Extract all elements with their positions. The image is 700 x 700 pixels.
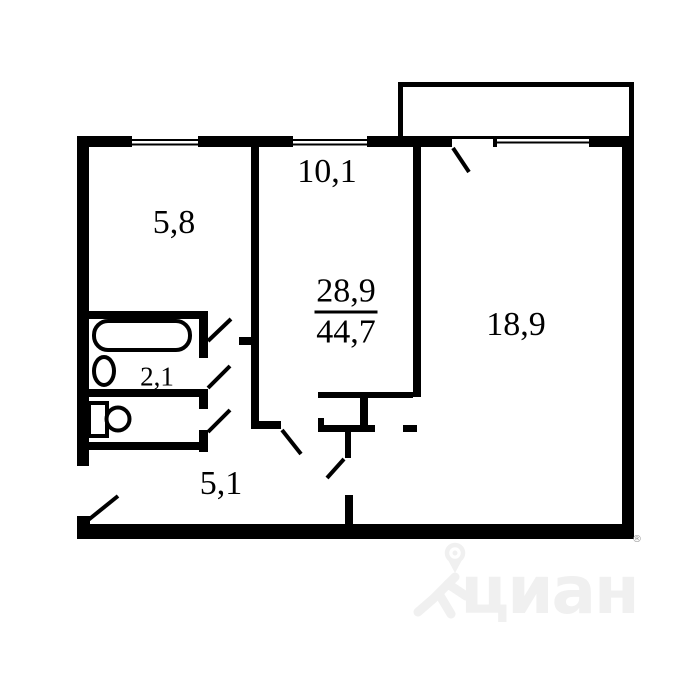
room-large-window-icon — [497, 139, 589, 147]
room-label-bathroom: 2,1 — [140, 364, 174, 391]
room-label-room-large: 18,9 — [486, 308, 546, 342]
entrance-door-swing — [87, 496, 118, 521]
closet-wall-bottom-nub — [318, 418, 324, 432]
toilet-bowl-icon — [107, 408, 130, 431]
toilet-wall-bottom-stub — [199, 430, 208, 452]
bathroom-door-swing — [208, 366, 230, 388]
kitchen-window-icon — [132, 136, 198, 147]
cian-logo-icon — [418, 545, 466, 614]
toilet-wall-bottom — [89, 442, 199, 450]
bathroom-wall-right — [199, 311, 208, 358]
room-label-kitchen: 5,8 — [153, 206, 196, 240]
watermark: циан — [418, 545, 638, 629]
watermark-brand-text: циан — [460, 552, 637, 629]
balcony-wall-left — [398, 82, 403, 138]
registered-mark: ® — [632, 534, 642, 545]
wall-divider-left-tick — [239, 337, 251, 345]
hall-door-wall — [345, 432, 351, 458]
living-area-value: 28,9 — [316, 275, 376, 309]
bathroom-wall-top — [89, 311, 208, 319]
balcony-wall-top — [398, 82, 634, 87]
hall-door-wall-stub — [345, 495, 353, 525]
balcony-door-opening — [452, 139, 493, 147]
wall-divider-left-foot — [259, 421, 281, 429]
wall-divider-right — [413, 140, 421, 397]
total-area-value: 44,7 — [316, 316, 376, 350]
balcony-door-swing — [453, 148, 469, 172]
toilet-door-swing — [208, 410, 230, 432]
room-label-hallway: 5,1 — [200, 467, 243, 501]
wall-right — [622, 136, 634, 539]
closet-wall-bottom-left — [318, 425, 375, 432]
room-label-room-small: 10,1 — [297, 155, 357, 189]
closet-wall-bottom-right — [403, 425, 417, 432]
wall-divider-left — [251, 140, 259, 429]
toilet-tank-icon — [89, 403, 107, 436]
area-summary: 28,9 44,7 — [315, 275, 378, 350]
room-small-door-swing — [282, 430, 301, 454]
room-small-window-icon — [293, 136, 367, 147]
kitchen-door-swing — [208, 319, 231, 341]
room-large-door-swing — [327, 459, 344, 478]
wall-bottom — [77, 524, 634, 539]
balcony — [398, 82, 634, 138]
sink-icon — [94, 357, 114, 385]
bathtub-icon — [94, 321, 190, 350]
floor-plan-page: циан 5,8 10,1 18,9 2,1 5,1 28,9 44,7 ® — [0, 0, 700, 700]
bathroom-wall-middle-stub — [199, 389, 208, 409]
balcony-wall-right — [629, 82, 634, 138]
